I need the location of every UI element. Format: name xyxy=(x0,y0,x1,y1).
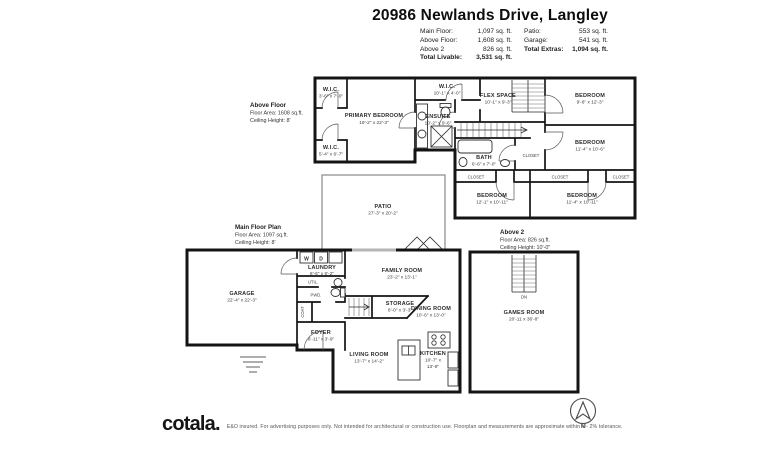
above2-stairs-outline xyxy=(512,255,536,292)
room-dims-bedroom-3: 12'-1" x 10'-11" xyxy=(476,200,508,206)
room-dims-kitchen-1: 10'-7" x xyxy=(425,358,442,364)
room-dims-bedroom-2: 11'-4" x 10'-6" xyxy=(575,147,604,153)
room-dims-bedroom-1: 9'-6" x 12'-3" xyxy=(577,100,604,106)
staircase-direction-arrow xyxy=(457,127,527,133)
bathtub xyxy=(458,140,492,153)
room-dims-primary-bedroom: 19'-2" x 22'-3" xyxy=(359,120,389,126)
room-label-bedroom-3: BEDROOM xyxy=(477,193,507,199)
stairs-up-treads xyxy=(512,84,545,108)
bath-sink xyxy=(501,160,510,167)
util-label: UTIL. xyxy=(308,280,318,285)
room-label-primary-bedroom: PRIMARY BEDROOM xyxy=(345,113,404,119)
coat-closet-label: COAT xyxy=(300,306,305,318)
room-label-laundry: LAUNDRY xyxy=(308,265,336,271)
room-label-living-room: LIVING ROOM xyxy=(349,352,388,358)
room-label-wic1: W.I.C. xyxy=(323,87,339,93)
fridge xyxy=(448,352,458,368)
footer: cotala. E&O insured. For advertising pur… xyxy=(162,414,623,434)
toilet-bowl xyxy=(459,158,467,167)
room-label-flex-space: FLEX SPACE xyxy=(480,93,516,99)
patio-steps-zigzag xyxy=(404,237,443,250)
room-dims-wic2: 5'-4" x 6'-7" xyxy=(319,152,343,158)
room-dims-patio: 27'-3" x 20'-2" xyxy=(368,211,398,217)
room-label-dining-room: DINING ROOM xyxy=(411,306,451,312)
water-heater xyxy=(334,279,342,287)
room-dims-storage: 8'-0" x 3'-3" xyxy=(388,308,412,314)
room-dims-bath: 6'-6" x 7'-0" xyxy=(472,162,496,168)
stairs-down-label: DN xyxy=(521,295,527,300)
room-label-wic3: W.I.C. xyxy=(439,84,455,90)
room-label-kitchen: KITCHEN xyxy=(420,351,446,357)
above2-floor-plan: Above 2 Floor Area: 826 sq.ft. Ceiling H… xyxy=(470,229,578,392)
room-dims-bedroom-4: 11'-4" x 10'-11" xyxy=(566,200,598,206)
powder-room-label: PWD. xyxy=(311,293,322,298)
room-dims-dining-room: 10'-6" x 13'-0" xyxy=(416,313,446,319)
main-floor-plan: Main Floor Plan Floor Area: 1097 sq.ft. … xyxy=(187,175,460,392)
room-dims-wic3: 10'-1" x 4'-0" xyxy=(434,91,461,97)
above2-title: Above 2 xyxy=(500,229,525,236)
dryer-label: D xyxy=(319,257,323,263)
disclaimer-text: E&O insured. For advertising purposes on… xyxy=(227,424,623,430)
above-floor-ceiling: Ceiling Height: 8' xyxy=(250,118,291,124)
above2-area: Floor Area: 826 sq.ft. xyxy=(500,238,550,244)
room-label-patio: PATIO xyxy=(375,204,393,210)
room-dims-kitchen-2: 13'-9" xyxy=(427,364,440,370)
floor-plan-canvas: Above Floor Floor Area: 1608 sq.ft. Ceil… xyxy=(0,0,770,450)
kitchen-counter xyxy=(448,370,458,386)
laundry-counter xyxy=(329,252,342,263)
room-label-bath: BATH xyxy=(476,155,492,161)
room-dims-garage: 22'-4" x 22'-3" xyxy=(227,298,257,304)
room-label-foyer: FOYER xyxy=(311,330,331,336)
room-dims-wic1: 3'-6" x 7'-0" xyxy=(319,94,343,100)
closet-label: CLOSET xyxy=(552,175,569,180)
closet-label: CLOSET xyxy=(613,175,630,180)
ensuite-sink-2 xyxy=(418,130,426,138)
room-label-ensuite: ENSUITE xyxy=(425,114,450,120)
room-label-wic2: W.I.C. xyxy=(323,145,339,151)
cotala-logo: cotala. xyxy=(162,414,220,434)
above-floor-title: Above Floor xyxy=(250,102,287,109)
room-dims-laundry: 8'-6" x 6'-2" xyxy=(310,271,334,277)
entry-steps xyxy=(240,357,266,372)
room-dims-family-room: 23'-2" x 13'-1" xyxy=(387,275,417,281)
closet-label: CLOSET xyxy=(523,153,540,158)
floor-plan-page: 20986 Newlands Drive, Langley Main Floor… xyxy=(0,0,770,450)
closet-label: CLOSET xyxy=(468,175,485,180)
stove xyxy=(428,332,450,348)
washer-label: W xyxy=(304,257,309,263)
toilet-bowl xyxy=(331,289,340,297)
room-dims-games-room: 20'-11 x 36'-8" xyxy=(509,317,539,323)
room-label-family-room: FAMILY ROOM xyxy=(382,268,423,274)
room-label-bedroom-1: BEDROOM xyxy=(575,93,605,99)
room-label-bedroom-4: BEDROOM xyxy=(567,193,597,199)
main-floor-area: Floor Area: 1097 sq.ft. xyxy=(235,233,288,239)
room-dims-foyer: 6'-11" x 3'-9" xyxy=(308,337,335,343)
main-floor-ceiling: Ceiling Height: 8' xyxy=(235,240,276,246)
above2-ceiling: Ceiling Height: 10'-0" xyxy=(500,245,550,251)
above-floor-plan: Above Floor Floor Area: 1608 sq.ft. Ceil… xyxy=(250,78,635,218)
room-label-garage: GARAGE xyxy=(229,291,254,297)
room-dims-living-room: 13'-7" x 14'-2" xyxy=(354,359,384,365)
main-floor-title: Main Floor Plan xyxy=(235,224,281,231)
above-floor-area: Floor Area: 1608 sq.ft. xyxy=(250,111,303,117)
powder-room-fixtures xyxy=(331,288,345,297)
toilet-tank xyxy=(341,288,346,297)
room-dims-flex-space: 10'-1" x 9'-3" xyxy=(485,100,512,106)
room-label-bedroom-2: BEDROOM xyxy=(575,140,605,146)
room-dims-ensuite: 10'-2" x 9'-6" xyxy=(425,121,452,127)
room-label-games-room: GAMES ROOM xyxy=(504,310,545,316)
